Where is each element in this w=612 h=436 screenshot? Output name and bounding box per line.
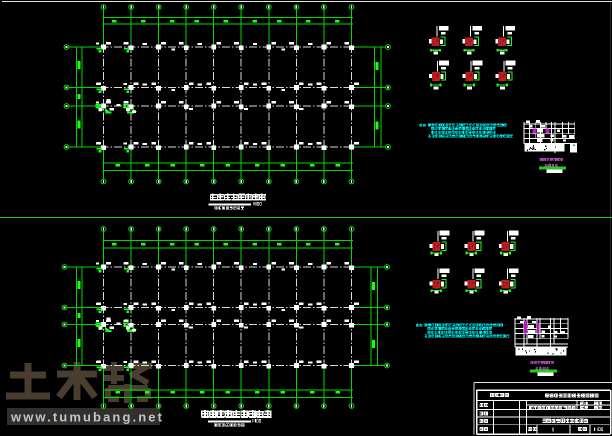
- svg-text:www.tumubang.net: www.tumubang.net: [10, 410, 164, 425]
